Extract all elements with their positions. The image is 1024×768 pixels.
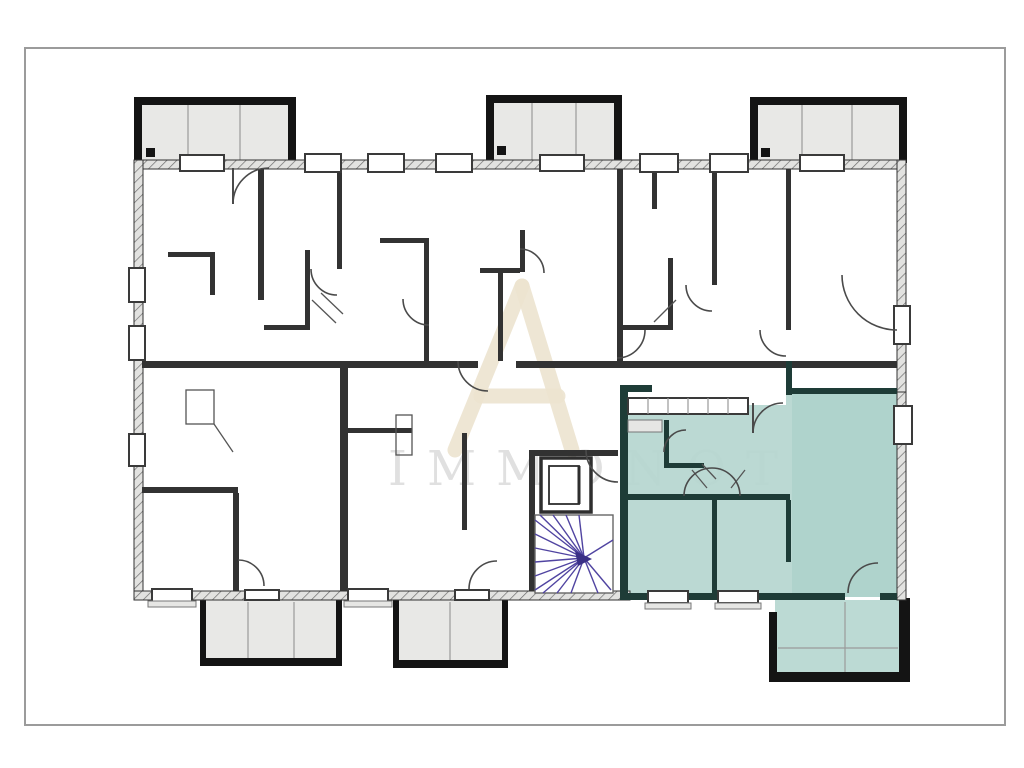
balcony-bottom-left bbox=[200, 600, 342, 666]
spiral-staircase bbox=[535, 515, 613, 593]
balcony-top-middle bbox=[486, 95, 622, 163]
upper-units-walls bbox=[168, 169, 791, 361]
highlighted-living-room bbox=[792, 394, 897, 597]
balcony-bottom-middle bbox=[393, 600, 508, 668]
page: IMMONOT bbox=[0, 0, 1024, 768]
window-band bbox=[628, 398, 748, 414]
balcony-highlighted bbox=[769, 598, 910, 682]
floor-plan: IMMONOT bbox=[0, 0, 1024, 768]
balcony-top-right bbox=[750, 97, 907, 163]
balcony-top-left bbox=[134, 97, 296, 163]
corridor-wall bbox=[142, 361, 897, 368]
